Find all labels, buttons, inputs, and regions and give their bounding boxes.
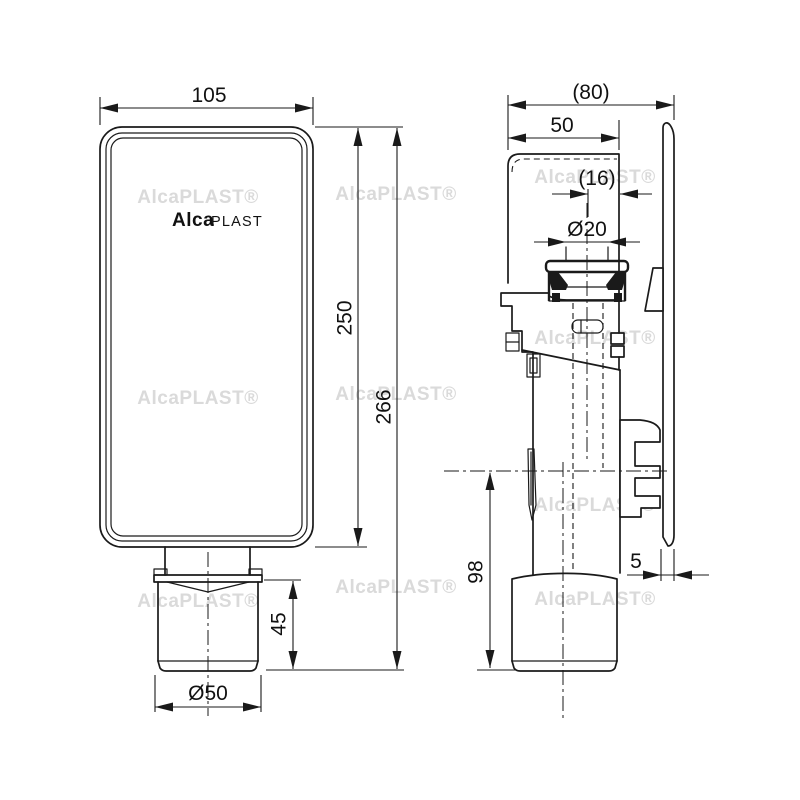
rib-detail <box>611 333 624 344</box>
rib-detail <box>611 346 624 357</box>
dimension-plate-gap: 5 <box>627 549 709 581</box>
dim-label-total-height: 266 <box>373 389 396 424</box>
watermark-text: AlcaPLAST® <box>534 328 655 349</box>
wall-plate <box>663 123 674 546</box>
dim-label-outlet-drop: 98 <box>465 560 488 583</box>
outlet-cup <box>512 573 617 661</box>
brand-logo: Alca PLAST <box>172 210 263 231</box>
dim-label-total-depth: (80) <box>572 81 609 104</box>
watermark-text: AlcaPLAST® <box>335 384 456 405</box>
dimension-outlet-drop: 98 <box>465 472 518 670</box>
dimension-total-depth: (80) <box>508 81 674 150</box>
dim-label-plate-gap: 5 <box>630 550 642 573</box>
dimension-width: 105 <box>100 84 313 125</box>
dim-label-outlet-height: 45 <box>268 612 291 635</box>
dim-label-width: 105 <box>191 84 226 107</box>
dimension-outlet-height: 45 <box>264 580 301 669</box>
technical-drawing: AlcaPLAST® AlcaPLAST® AlcaPLAST® AlcaPLA… <box>0 0 800 800</box>
dimension-body-depth: 50 <box>508 114 619 150</box>
watermark-text: AlcaPLAST® <box>137 591 258 612</box>
side-centerline-vertical <box>563 203 587 718</box>
watermark-text: AlcaPLAST® <box>534 589 655 610</box>
flange-tab-right <box>249 569 262 575</box>
watermark-text: AlcaPLAST® <box>335 577 456 598</box>
dim-label-body-height: 250 <box>334 300 357 335</box>
wall-bracket <box>645 268 663 311</box>
dim-label-inlet-diameter: Ø20 <box>567 218 607 241</box>
dim-label-body-depth: 50 <box>550 114 573 137</box>
dim-label-outlet-diameter: Ø50 <box>188 682 228 705</box>
brand-logo-bold: Alca <box>172 210 214 231</box>
dim-label-inlet-offset: (16) <box>578 167 615 190</box>
comb-bracket <box>620 420 660 517</box>
dimension-outlet-diameter: Ø50 <box>155 675 261 712</box>
watermark-text: AlcaPLAST® <box>335 184 456 205</box>
watermark-text: AlcaPLAST® <box>137 187 258 208</box>
dimension-inlet-diameter: Ø20 <box>534 218 640 247</box>
brand-logo-light: PLAST <box>211 214 263 230</box>
watermark-text: AlcaPLAST® <box>137 388 258 409</box>
blade-detail <box>528 449 536 520</box>
